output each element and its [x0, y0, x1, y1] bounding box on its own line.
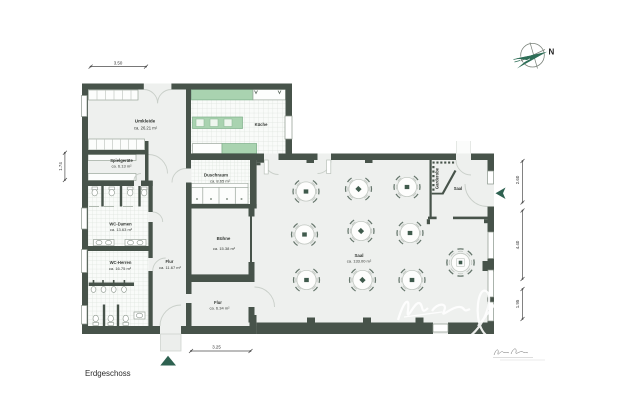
svg-text:ca. 6.13 m²: ca. 6.13 m² — [111, 164, 132, 169]
svg-text:Umkleide: Umkleide — [135, 119, 156, 124]
svg-text:ca. 13.63 m²: ca. 13.63 m² — [110, 227, 133, 232]
svg-text:Saal: Saal — [454, 186, 463, 191]
svg-text:Bühne: Bühne — [217, 236, 231, 241]
svg-text:WC-Herren: WC-Herren — [110, 260, 132, 265]
svg-text:ca. 26.21 m²: ca. 26.21 m² — [134, 126, 158, 131]
svg-text:1.74: 1.74 — [58, 162, 63, 171]
svg-text:Saal: Saal — [354, 253, 363, 258]
svg-text:Küche: Küche — [255, 122, 268, 127]
svg-text:Flur: Flur — [214, 300, 222, 305]
svg-text:ca. 11.67 m²: ca. 11.67 m² — [159, 265, 182, 270]
svg-text:Garderobe: Garderobe — [435, 167, 440, 189]
svg-text:WC-Damen: WC-Damen — [109, 222, 132, 227]
svg-text:ca. 133.00 m²: ca. 133.00 m² — [347, 259, 372, 264]
svg-text:1.95: 1.95 — [515, 299, 520, 308]
svg-text:Spielgeräte: Spielgeräte — [110, 158, 133, 163]
svg-text:ca. 16.75 m²: ca. 16.75 m² — [109, 266, 132, 271]
svg-text:ca. 8.65 m²: ca. 8.65 m² — [210, 179, 231, 184]
svg-text:2.60: 2.60 — [515, 175, 520, 184]
svg-text:3.25: 3.25 — [212, 345, 221, 350]
svg-text:Duschraum: Duschraum — [204, 173, 228, 178]
svg-text:ca. 6.34 m²: ca. 6.34 m² — [209, 306, 230, 311]
svg-text:3.50: 3.50 — [114, 61, 123, 66]
svg-text:Erdgeschoss: Erdgeschoss — [85, 369, 131, 378]
svg-text:ca. 15.38 m²: ca. 15.38 m² — [213, 246, 236, 251]
svg-text:4.40: 4.40 — [515, 240, 520, 249]
svg-text:N: N — [549, 48, 555, 57]
svg-text:Flur: Flur — [166, 259, 174, 264]
